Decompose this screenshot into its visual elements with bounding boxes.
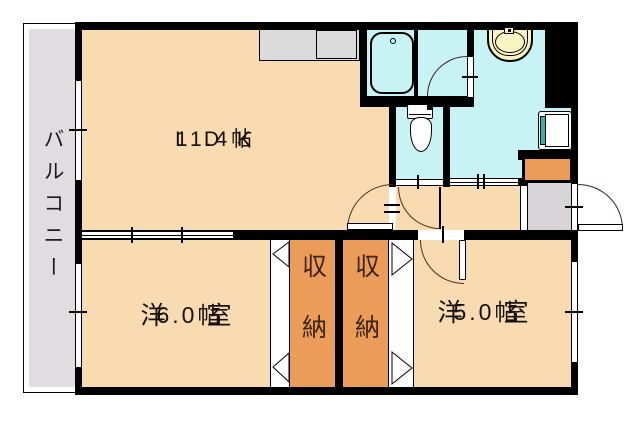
toilet-door-leaf <box>439 187 441 229</box>
wall-bath-door-post <box>467 30 474 57</box>
toilet-door-opening <box>396 179 443 186</box>
washroom-door-tick-2 <box>483 174 485 189</box>
window-bedroom-west <box>75 264 82 367</box>
sliding-door-tick-2 <box>181 227 183 243</box>
bedroom-east-door-leaf <box>459 240 466 280</box>
kitchen-sink-icon <box>316 30 357 59</box>
bathtub-drain <box>390 38 396 44</box>
ldk-label: L D K 11.4帖 <box>121 108 311 172</box>
wall-hall-west <box>389 107 396 187</box>
washroom-door-tick-1 <box>477 174 479 189</box>
ldk-size: 11.4帖 <box>176 128 256 152</box>
ldk-door-leaf <box>347 223 393 230</box>
washing-machine-accent <box>540 116 546 145</box>
closet-west-label-wrap: 収納 <box>290 240 335 387</box>
bedroom-east-size: 5.0帖 <box>454 300 521 326</box>
genkan-step-edge <box>520 183 528 230</box>
bedroom-east-door-opening <box>418 230 464 240</box>
balcony-label: バルコニー <box>37 128 67 288</box>
floor-plan: バルコニー <box>0 0 628 444</box>
closet-east-label: 収納 <box>348 253 384 375</box>
entrance-door-leaf <box>578 224 623 231</box>
washing-machine-inner <box>545 114 569 147</box>
genkan-floor <box>524 183 571 230</box>
wall-corner-block <box>545 22 578 108</box>
closet-east-label-wrap: 収納 <box>343 240 388 387</box>
window-ldk-tick <box>69 129 87 131</box>
shoe-cabinet-icon <box>522 156 573 183</box>
bedroom-west-label: 洋 室 6.0帖 <box>95 284 285 348</box>
wall-closet-divider <box>335 240 343 387</box>
wall-bottom <box>75 387 578 395</box>
washbasin-faucet-dot <box>508 29 511 32</box>
wall-bath-divider <box>414 30 418 96</box>
toilet-handle <box>427 105 432 110</box>
bedroom-east-label: 洋 室 5.0帖 <box>392 281 582 345</box>
washbasin-bowl <box>495 31 525 53</box>
toilet-tank-line <box>409 114 431 115</box>
bedroom-west-size: 6.0帖 <box>157 303 224 329</box>
wall-toilet-east <box>443 107 450 187</box>
entrance-door-icon <box>578 184 623 229</box>
sliding-door-ldk-bedroom <box>82 231 233 239</box>
closet-west-label: 収納 <box>295 253 331 375</box>
window-bedroom-west-tick <box>69 311 87 313</box>
balcony-label-wrap: バルコニー <box>29 29 75 387</box>
sliding-door-tick-1 <box>131 227 133 243</box>
